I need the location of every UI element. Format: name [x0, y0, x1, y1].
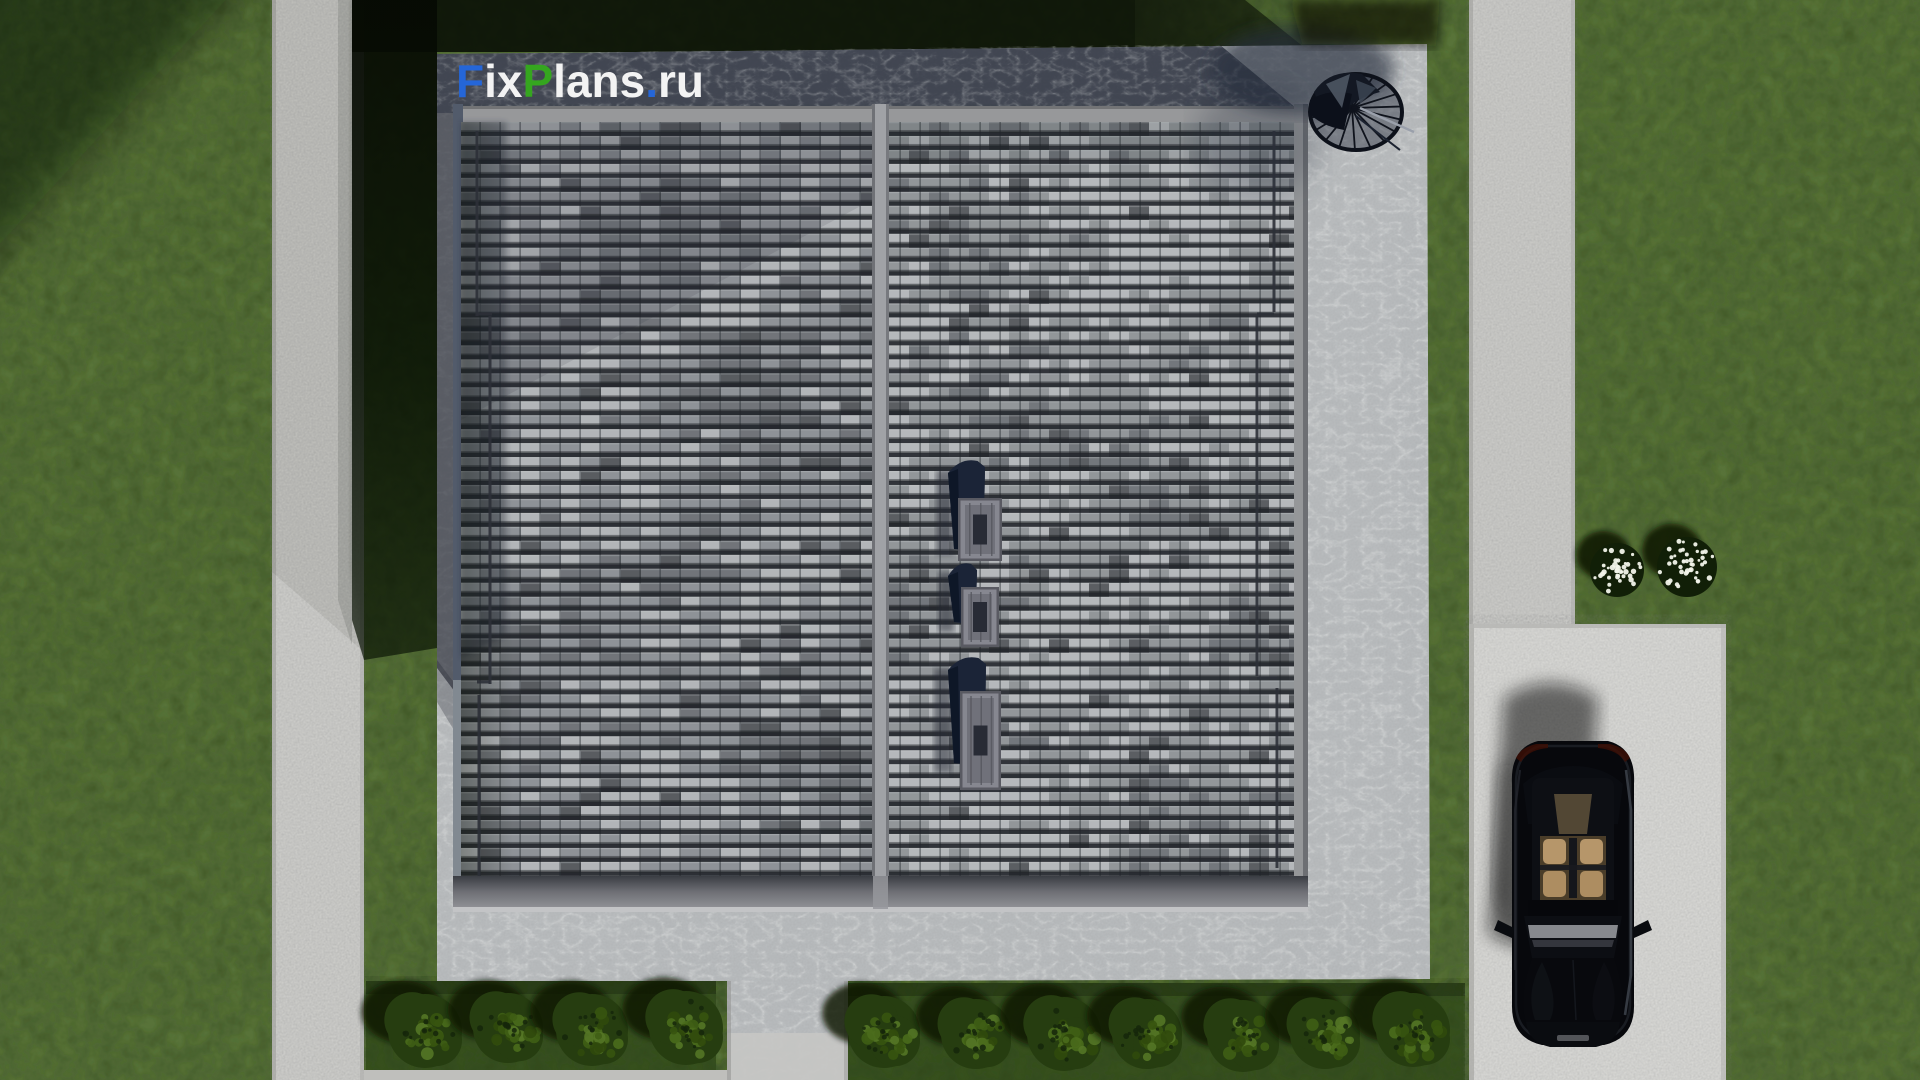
svg-text:FixPlans.ru: FixPlans.ru — [456, 55, 704, 107]
